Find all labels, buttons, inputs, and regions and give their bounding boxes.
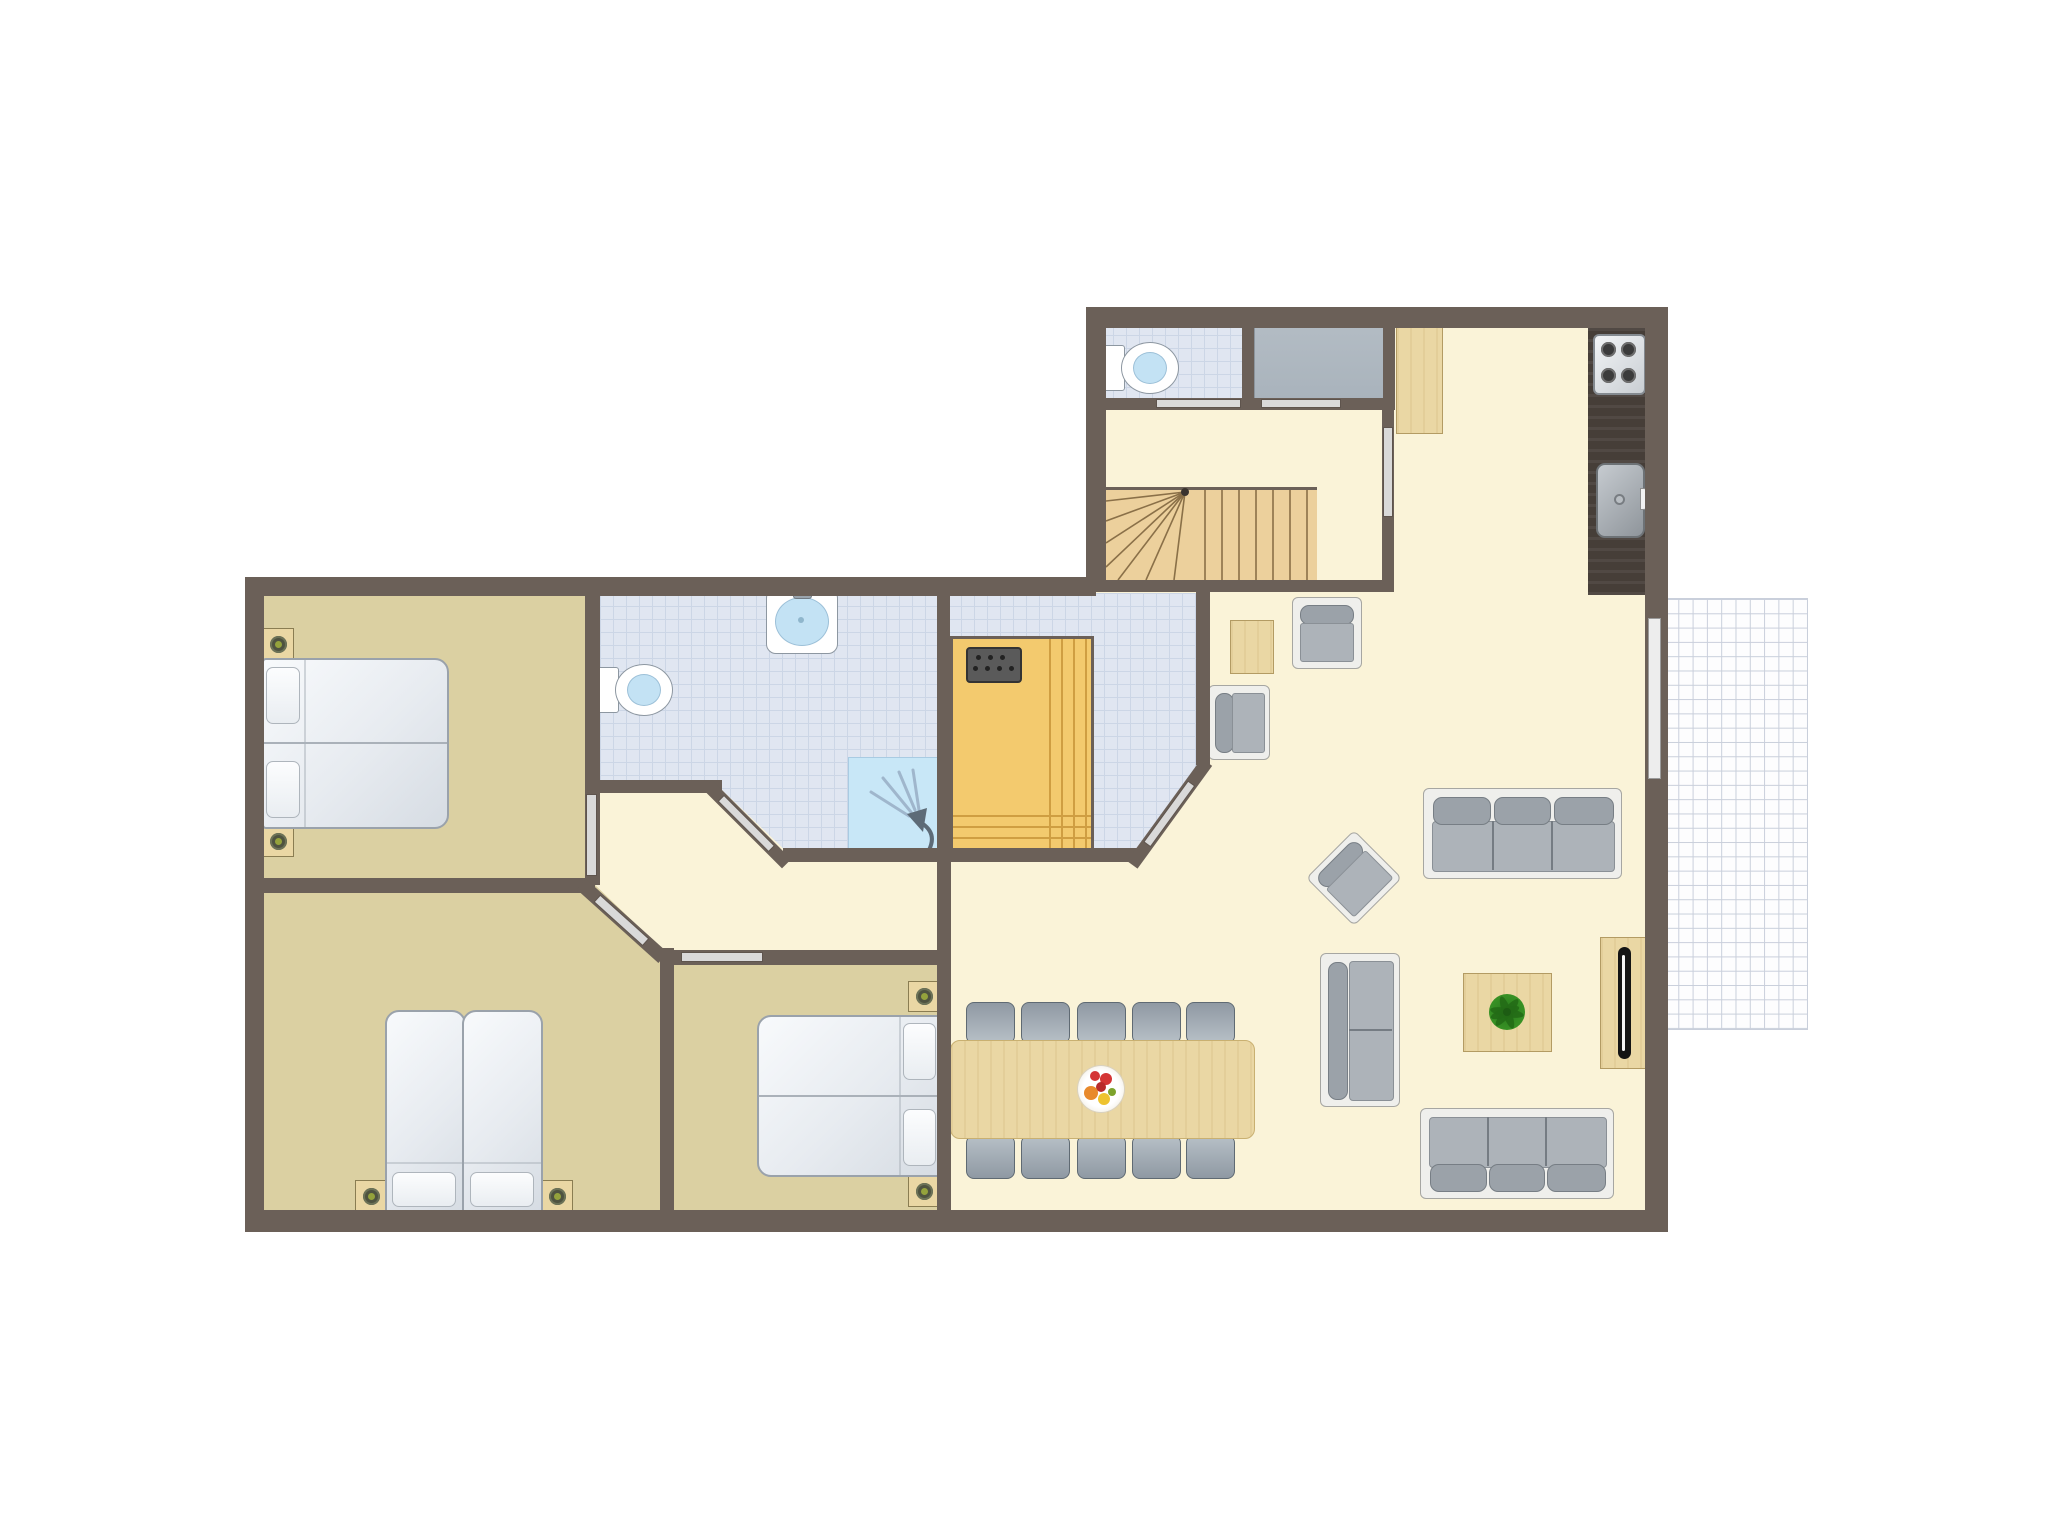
coffee-table [1463,973,1552,1052]
pillow [470,1172,534,1207]
nightstand [908,1176,940,1207]
wall-bedroom1-2-divider [245,878,595,893]
washbasin-drain [798,617,804,623]
living-room-window [1648,618,1661,779]
lamp-icon [916,988,933,1005]
wc-door [1157,400,1240,407]
wall-bath-sauna-divider [937,593,950,855]
nightstand [355,1180,387,1212]
dining-chair [1077,1002,1126,1044]
bedroom1-door [587,795,596,875]
bathroom-toilet [594,662,674,716]
washbasin [766,588,838,654]
terrace [1663,598,1808,1030]
shower-spray-icon [849,758,939,851]
dining-chair [966,1002,1015,1044]
bedroom3-door [682,953,762,961]
nightstand [262,628,294,660]
pillow [266,667,300,724]
dining-chair [1021,1135,1070,1179]
wall-sauna-right [1196,580,1210,765]
burner-4 [1621,368,1636,383]
sauna-bench-bottom [953,811,1091,850]
burner-3 [1601,368,1616,383]
stove [1593,334,1646,395]
wall-outer-top-lower [245,577,1096,596]
armchair [1292,597,1362,669]
sofa-2-seat [1320,953,1400,1107]
bathroom-toilet-bowl-inner [627,674,661,706]
wc-toilet-bowl-inner [1133,352,1167,384]
kitchen-sink-drain [1614,494,1625,505]
kitchen-sink [1596,463,1645,538]
shower [848,757,940,852]
winder-stairs [1106,487,1317,580]
wardrobe [1396,322,1443,434]
dining-chair [1132,1135,1181,1179]
plant-icon [1485,990,1529,1034]
lamp-icon [270,636,287,653]
wc-toilet [1100,340,1182,394]
side-table [1230,620,1274,674]
sofa-3-seat [1423,788,1622,879]
sauna-heater [966,647,1022,683]
nightstand [908,981,940,1012]
wall-outer-upper-left [1086,307,1106,592]
fruit-bowl [1078,1066,1124,1112]
wall-hall-bottom [1086,580,1394,592]
wall-storage-right [1383,328,1395,398]
dining-chair [1021,1002,1070,1044]
dining-chair [1186,1002,1235,1044]
wall-corridor-right [937,855,951,1212]
wall-wc-bottom [1096,398,1395,410]
storage-closet [1254,322,1385,400]
sauna-cabin [950,636,1094,853]
nightstand [541,1180,573,1212]
pillow [392,1172,456,1207]
sofa-3-seat [1420,1108,1614,1199]
pillow [903,1109,936,1166]
tv-sideboard [1600,937,1647,1069]
wall-bathroom-bottom-left [585,780,722,793]
burner-2 [1621,342,1636,357]
lamp-icon [270,833,287,850]
floor-plan-canvas [0,0,2048,1536]
lamp-icon [916,1183,933,1200]
hall-door [1384,428,1392,516]
dining-chair [1186,1135,1235,1179]
pillow [903,1023,936,1080]
lamp-icon [363,1188,380,1205]
wall-bedroom2-3-divider [660,948,674,1212]
wall-outer-bottom [245,1210,1668,1232]
armchair [1208,685,1270,760]
wall-bath-sauna-bottom [783,848,1140,862]
storage-door [1262,400,1340,407]
nightstand [262,825,294,857]
wall-outer-left [245,577,264,1232]
dining-chair [1077,1135,1126,1179]
pillow [266,761,300,818]
lamp-icon [549,1188,566,1205]
dining-chair [966,1135,1015,1179]
burner-1 [1601,342,1616,357]
wall-wc-storage-divider [1242,328,1254,398]
wall-outer-top [1086,307,1668,328]
tv-icon [1618,947,1631,1059]
dining-chair [1132,1002,1181,1044]
